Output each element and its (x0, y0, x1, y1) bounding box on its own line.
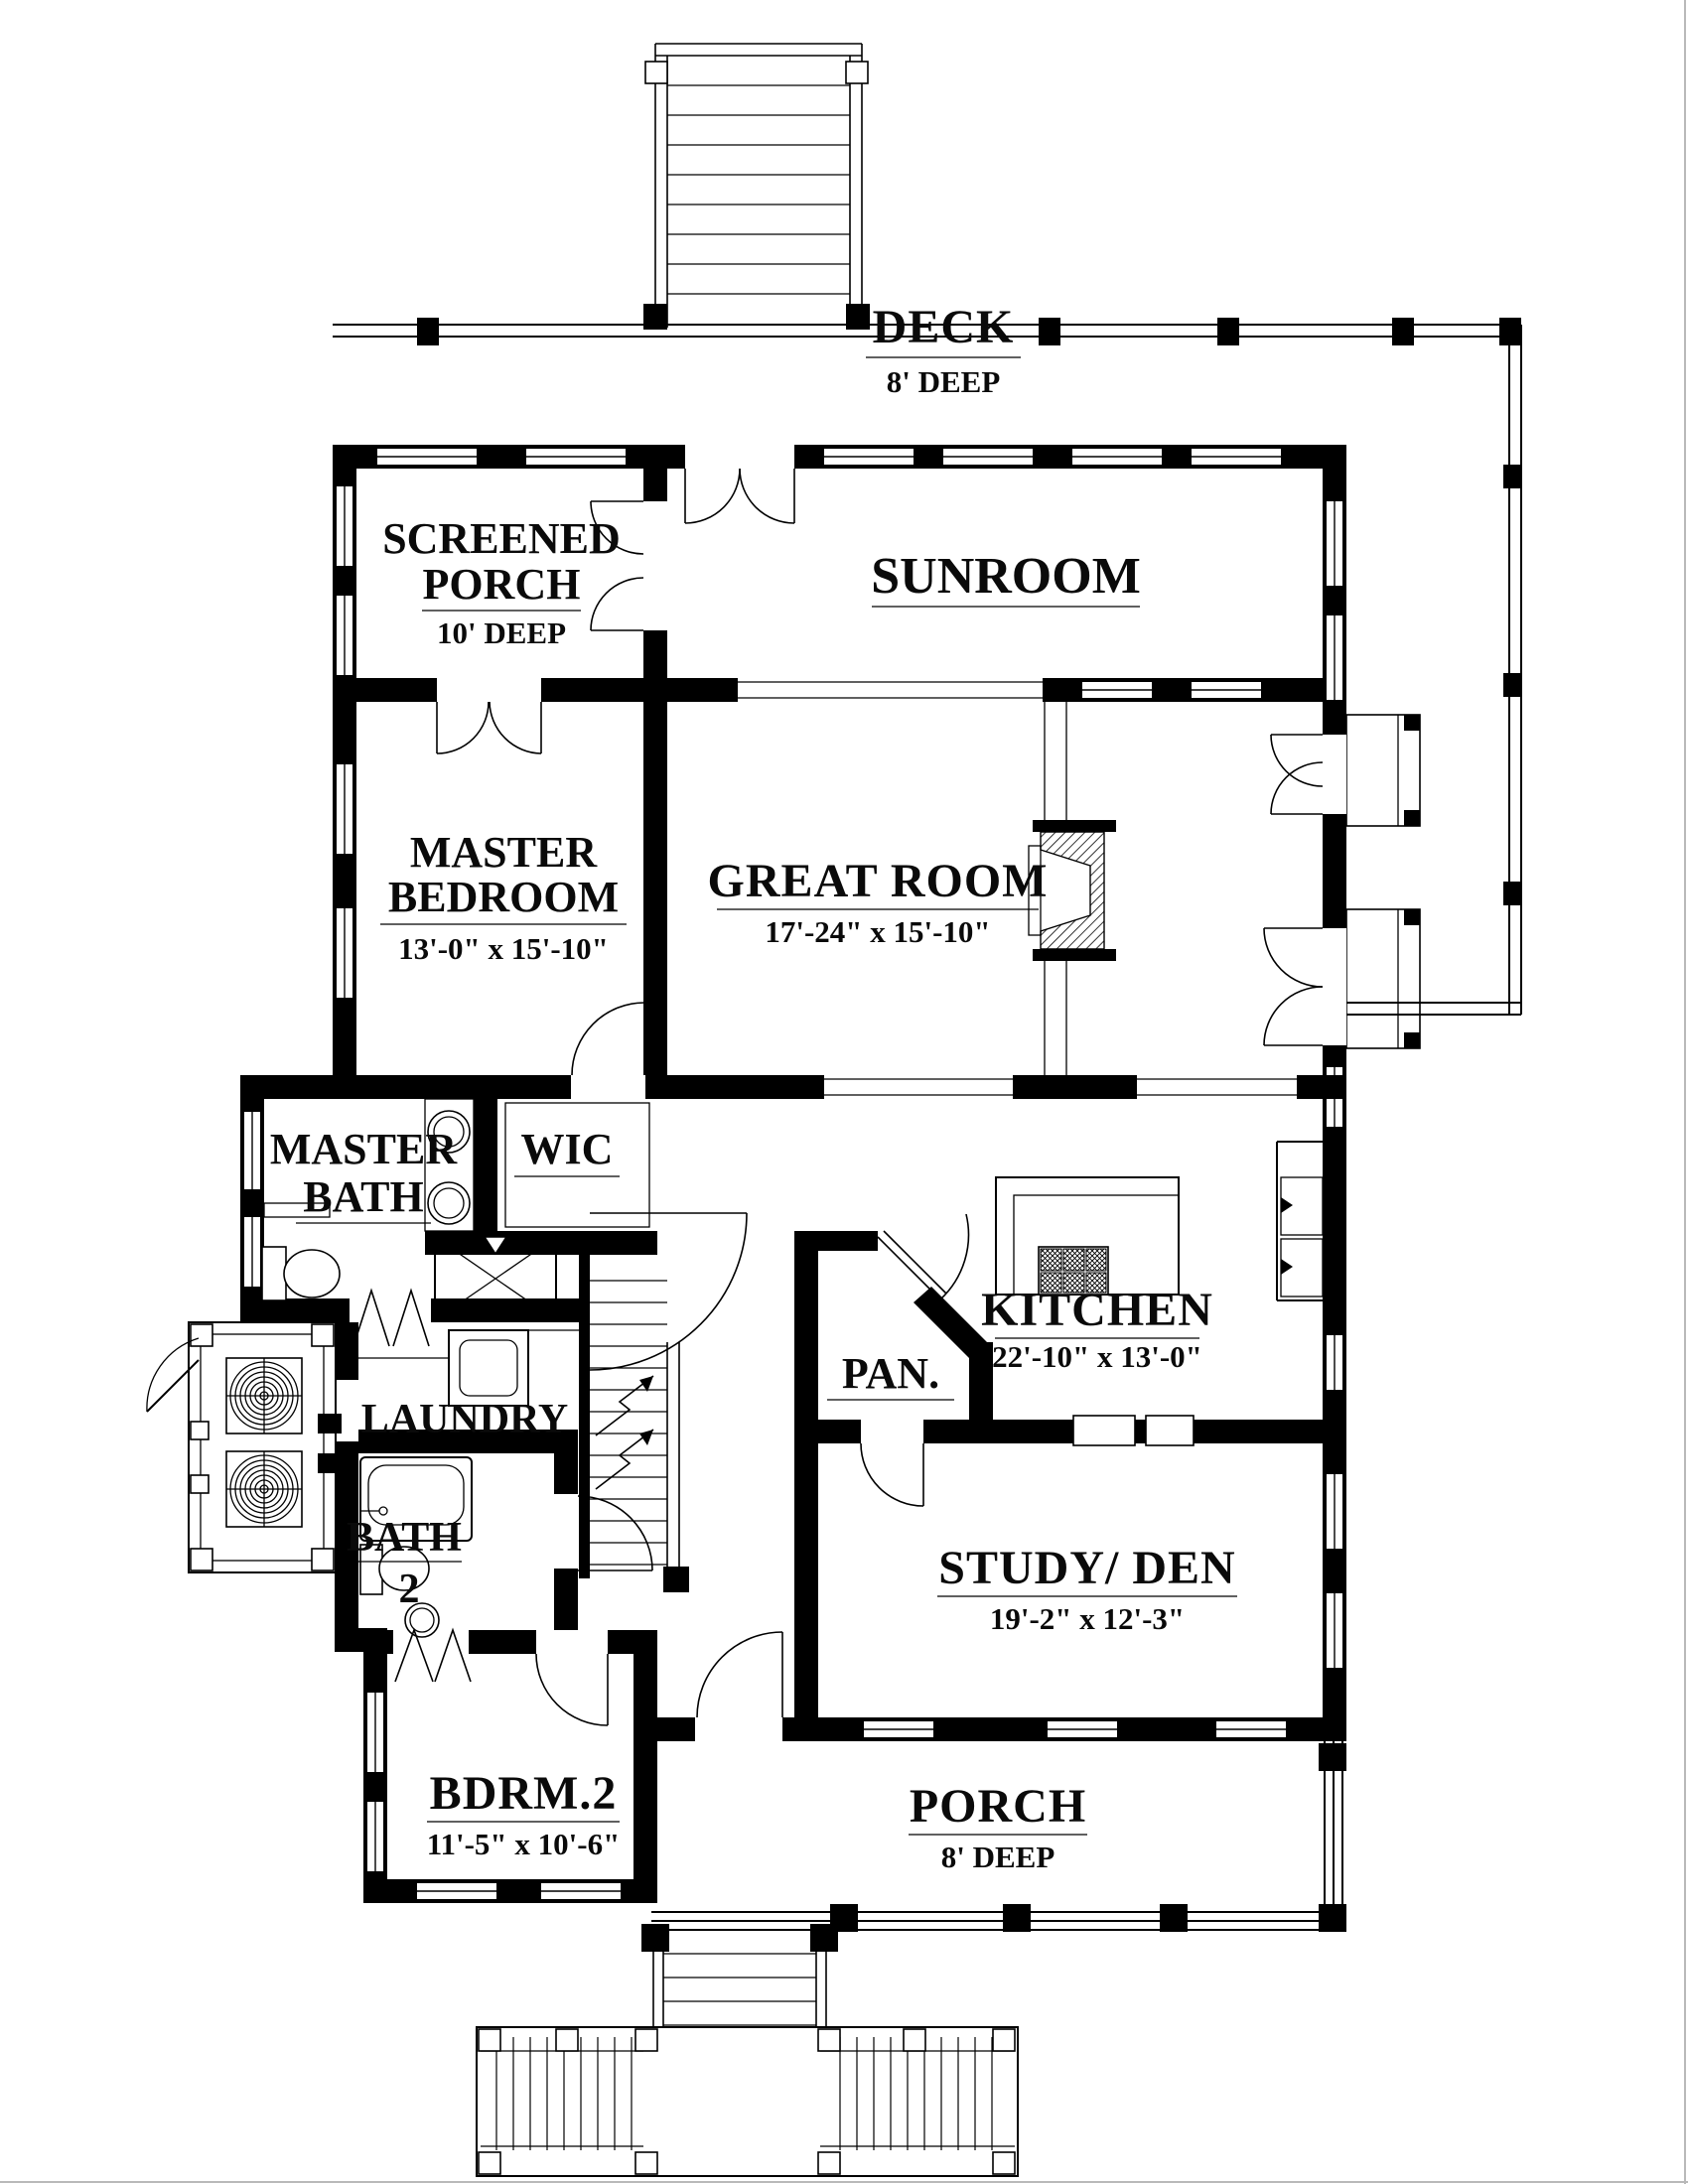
floor-plan-page: DECK 8' DEEP SCREENED PORCH 10' DEEP SUN… (0, 0, 1688, 2184)
svg-text:BDRM.2: BDRM.2 (430, 1767, 618, 1820)
svg-text:17'-24" x 15'-10": 17'-24" x 15'-10" (765, 914, 990, 949)
porch-post (1319, 1743, 1346, 1771)
svg-text:19'-2" x 12'-3": 19'-2" x 12'-3" (990, 1601, 1185, 1636)
svg-text:PORCH: PORCH (910, 1780, 1086, 1833)
porch-post (1160, 1904, 1188, 1932)
stair-post (645, 62, 667, 83)
entry-steps (477, 1924, 1018, 2176)
svg-text:PAN.: PAN. (842, 1349, 939, 1398)
svg-text:SUNROOM: SUNROOM (871, 548, 1141, 605)
svg-text:13'-0" x 15'-10": 13'-0" x 15'-10" (398, 931, 609, 966)
screen-door (147, 1360, 199, 1412)
hvac-fan-icon (226, 1358, 302, 1433)
deck-post (1503, 673, 1521, 697)
svg-text:BATH: BATH (303, 1172, 423, 1221)
porch-railing (651, 1741, 1346, 1932)
toilet-tank (262, 1247, 286, 1300)
room-label-porch: PORCH 8' DEEP (909, 1780, 1087, 1874)
room-label-kitchen: KITCHEN 22'-10" x 13'-0" (981, 1284, 1213, 1374)
svg-text:SCREENED: SCREENED (382, 514, 621, 563)
left-balusters (496, 2037, 632, 2150)
svg-text:BATH: BATH (347, 1515, 462, 1561)
deck-post (417, 318, 439, 345)
svg-text:22'-10" x 13'-0": 22'-10" x 13'-0" (992, 1339, 1202, 1374)
svg-text:GREAT ROOM: GREAT ROOM (708, 855, 1049, 907)
right-balusters (840, 2037, 992, 2150)
hvac-platform (147, 1322, 342, 1572)
deck-post (1503, 882, 1521, 905)
deck-post (1499, 318, 1521, 345)
room-label-sunroom: SUNROOM (871, 548, 1141, 607)
svg-text:MASTER: MASTER (410, 828, 598, 877)
svg-text:BEDROOM: BEDROOM (388, 873, 619, 921)
toilet-bowl (284, 1250, 340, 1297)
room-label-pantry: PAN. (827, 1349, 954, 1400)
svg-text:KITCHEN: KITCHEN (981, 1284, 1213, 1336)
stair-arrow-head (639, 1430, 653, 1445)
svg-text:8' DEEP: 8' DEEP (941, 1840, 1055, 1874)
room-label-screened-porch: SCREENED PORCH 10' DEEP (382, 514, 621, 650)
svg-text:STUDY/ DEN: STUDY/ DEN (938, 1542, 1235, 1594)
svg-text:PORCH: PORCH (423, 560, 581, 609)
deck-post (1217, 318, 1239, 345)
room-label-laundry: LAUNDRY (352, 1397, 577, 1444)
stair-post (643, 304, 667, 330)
room-label-great-room: GREAT ROOM 17'-24" x 15'-10" (708, 855, 1049, 949)
deck-post (1503, 465, 1521, 488)
room-label-study-den: STUDY/ DEN 19'-2" x 12'-3" (937, 1542, 1237, 1636)
stair-post (846, 304, 870, 330)
deck-post (1039, 318, 1060, 345)
svg-text:WIC: WIC (521, 1125, 614, 1173)
svg-text:11'-5" x 10'-6": 11'-5" x 10'-6" (427, 1827, 621, 1861)
porch-post (1003, 1904, 1031, 1932)
svg-text:10' DEEP: 10' DEEP (437, 615, 566, 650)
room-label-master-bedroom: MASTER BEDROOM 13'-0" x 15'-10" (380, 828, 627, 966)
deck-title: DECK (873, 301, 1015, 353)
room-label-bedroom-2: BDRM.2 11'-5" x 10'-6" (427, 1767, 621, 1861)
stair-post (846, 62, 868, 83)
hvac-fan-icon (226, 1451, 302, 1527)
floor-plan-drawing: DECK 8' DEEP SCREENED PORCH 10' DEEP SUN… (0, 0, 1688, 2184)
svg-text:MASTER: MASTER (270, 1125, 458, 1173)
deck-post (1392, 318, 1414, 345)
deck-size: 8' DEEP (887, 364, 1001, 399)
kitchen-island (996, 1177, 1179, 1295)
kitchen-counter (1277, 1142, 1323, 1300)
room-label-deck: DECK 8' DEEP (866, 301, 1021, 399)
newel-post (663, 1567, 689, 1592)
main-staircase (590, 1281, 689, 1592)
deck-stairs-top (643, 44, 870, 330)
deck-door-landings (1346, 715, 1420, 1048)
utility-sink (449, 1330, 528, 1406)
porch-post (1319, 1904, 1346, 1932)
room-label-wic: WIC (514, 1125, 620, 1176)
laundry-fixtures (358, 1330, 579, 1406)
room-label-master-bath: MASTER BATH (270, 1125, 458, 1223)
svg-text:2: 2 (399, 1567, 420, 1612)
svg-text:LAUNDRY: LAUNDRY (361, 1397, 569, 1442)
